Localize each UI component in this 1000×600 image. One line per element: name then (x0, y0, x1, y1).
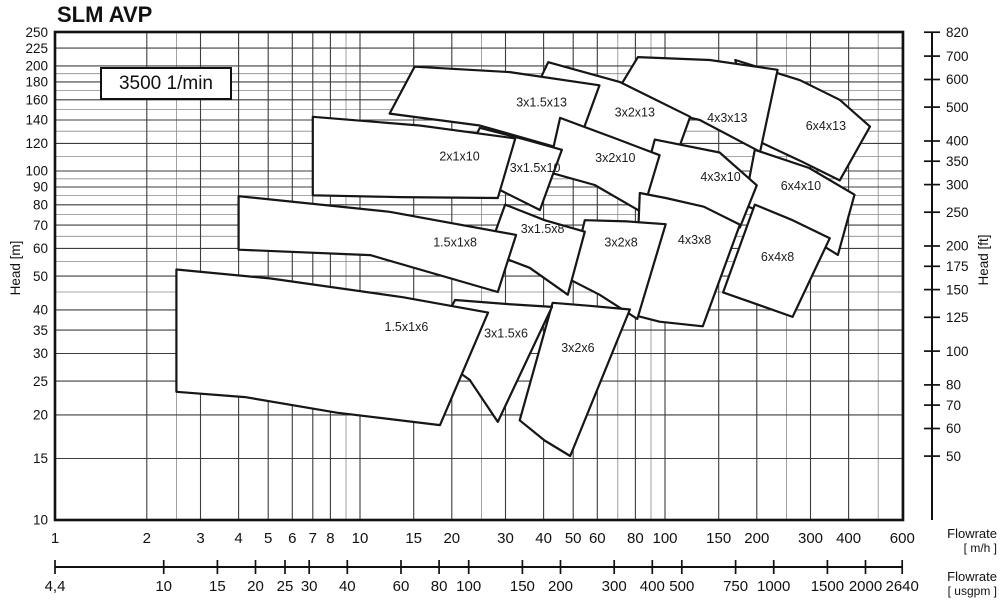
x-usgpm-tick: 40 (339, 578, 356, 595)
envelope-1.5x1x6 (176, 270, 488, 426)
x-mh-tick: 40 (535, 530, 552, 547)
speed-badge-label: 3500 1/min (119, 73, 213, 95)
y-right-tick: 100 (946, 344, 969, 359)
y-left-tick: 200 (25, 59, 48, 74)
y-left-tick: 20 (33, 408, 48, 423)
x-mh-tick: 60 (589, 530, 606, 547)
y-left-tick: 60 (33, 241, 48, 256)
y-left-tick: 250 (25, 25, 48, 40)
x-usgpm-tick: 300 (602, 578, 627, 595)
x-usgpm-tick: 10 (155, 578, 172, 595)
envelope-label-3x2x13: 3x2x13 (615, 106, 655, 120)
speed-badge: 3500 1/min (100, 67, 232, 100)
y-left-tick: 30 (33, 346, 48, 361)
envelope-label-4x3x10: 4x3x10 (700, 170, 740, 184)
x-mh-tick: 200 (744, 530, 769, 547)
x-mh-tick: 3 (196, 530, 204, 547)
y-right-tick: 600 (946, 72, 969, 87)
y-right-tick: 500 (946, 100, 969, 115)
y-axis-right: 8207006005004003503002502001751501251008… (924, 25, 969, 520)
x-usgpm-tick: 4,4 (45, 578, 66, 595)
envelope-label-3x1.5x8: 3x1.5x8 (521, 222, 565, 236)
x-mh-tick: 1 (51, 530, 59, 547)
y-left-tick: 50 (33, 269, 48, 284)
envelope-label-6x4x10: 6x4x10 (781, 179, 821, 193)
y-right-tick: 700 (946, 49, 969, 64)
x-mh-tick: 100 (652, 530, 677, 547)
y-right-tick: 300 (946, 177, 969, 192)
y-left-tick: 160 (25, 93, 48, 108)
envelope-label-2x1x10: 2x1x10 (439, 150, 479, 164)
x-usgpm-tick: 25 (277, 578, 294, 595)
y-left-tick: 70 (33, 218, 48, 233)
x-usgpm-tick: 150 (510, 578, 535, 595)
x-usgpm-tick: 20 (247, 578, 264, 595)
x-usgpm-tick: 750 (723, 578, 748, 595)
x-usgpm-tick: 60 (393, 578, 410, 595)
y-right-tick: 150 (946, 282, 969, 297)
y-left-tick: 140 (25, 113, 48, 128)
x-usgpm-tick: 500 (669, 578, 694, 595)
y-right-tick: 50 (946, 449, 961, 464)
x-mh-tick: 80 (627, 530, 644, 547)
y-right-tick: 400 (946, 134, 969, 149)
x-mh-tick: 5 (264, 530, 272, 547)
x-mh-tick: 10 (352, 530, 369, 547)
x-mh-tick: 150 (706, 530, 731, 547)
y-right-tick: 820 (946, 25, 969, 40)
x-mh-tick: 4 (234, 530, 242, 547)
x-usgpm-tick: 15 (209, 578, 226, 595)
y-right-tick: 60 (946, 421, 961, 436)
x-usgpm-tick: 2000 (849, 578, 882, 595)
x-mh-tick: 50 (565, 530, 582, 547)
y-left-tick: 90 (33, 180, 48, 195)
y-left-tick: 40 (33, 303, 48, 318)
x-mh-tick: 6 (288, 530, 296, 547)
y-left-tick: 100 (25, 164, 48, 179)
y-left-tick: 120 (25, 136, 48, 151)
envelope-label-6x4x8: 6x4x8 (761, 250, 794, 264)
x-mh-tick: 20 (443, 530, 460, 547)
x-mh-tick: 2 (143, 530, 151, 547)
envelope-label-3x1.5x13: 3x1.5x13 (516, 96, 567, 110)
envelope-label-1.5x1x8: 1.5x1x8 (433, 236, 477, 250)
y-left-tick: 25 (33, 374, 48, 389)
y-right-tick: 350 (946, 154, 969, 169)
x-mh-tick: 400 (836, 530, 861, 547)
y-right-tick: 250 (946, 205, 969, 220)
envelope-label-3x1.5x10: 3x1.5x10 (510, 161, 561, 175)
x-mh-tick: 8 (326, 530, 334, 547)
x-mh-tick: 7 (309, 530, 317, 547)
envelope-label-3x2x6: 3x2x6 (561, 341, 594, 355)
x-usgpm-tick: 2640 (886, 578, 919, 595)
x-axis-mh-ticks: 1234567810152030405060801001502003004006… (51, 530, 915, 547)
y-right-tick: 125 (946, 310, 969, 325)
envelope-label-6x4x13: 6x4x13 (806, 119, 846, 133)
y-right-tick: 200 (946, 239, 969, 254)
x-usgpm-tick: 400 (640, 578, 665, 595)
y-left-tick: 10 (33, 513, 48, 528)
x-usgpm-tick: 1500 (811, 578, 844, 595)
y-right-tick: 70 (946, 398, 961, 413)
x-axis-usgpm: 4,41015202530406080100150200300400500750… (45, 560, 919, 595)
envelope-label-1.5x1x6: 1.5x1x6 (385, 320, 429, 334)
envelope-label-3x2x10: 3x2x10 (595, 151, 635, 165)
x-usgpm-tick: 100 (456, 578, 481, 595)
envelope-label-3x1.5x6: 3x1.5x6 (484, 327, 528, 341)
y-left-tick: 80 (33, 198, 48, 213)
envelope-label-3x2x8: 3x2x8 (604, 236, 637, 250)
y-right-tick: 80 (946, 378, 961, 393)
y-axis-left-ticks: 2502252001801601401201009080706050403530… (25, 25, 48, 528)
envelope-label-4x3x13: 4x3x13 (707, 111, 747, 125)
x-usgpm-tick: 30 (301, 578, 318, 595)
pump-selection-chart: SLM AVP 3500 1/min Head [m] Head [ft] Fl… (0, 0, 1000, 600)
y-left-tick: 180 (25, 75, 48, 90)
x-usgpm-tick: 80 (431, 578, 448, 595)
envelope-label-4x3x8: 4x3x8 (678, 233, 711, 247)
x-mh-tick: 600 (890, 530, 915, 547)
x-mh-tick: 300 (798, 530, 823, 547)
x-usgpm-tick: 200 (548, 578, 573, 595)
y-left-tick: 15 (33, 451, 48, 466)
x-usgpm-tick: 1000 (757, 578, 790, 595)
y-left-tick: 225 (25, 41, 48, 56)
y-right-tick: 175 (946, 259, 969, 274)
x-mh-tick: 30 (497, 530, 514, 547)
y-left-tick: 35 (33, 323, 48, 338)
x-mh-tick: 15 (405, 530, 422, 547)
